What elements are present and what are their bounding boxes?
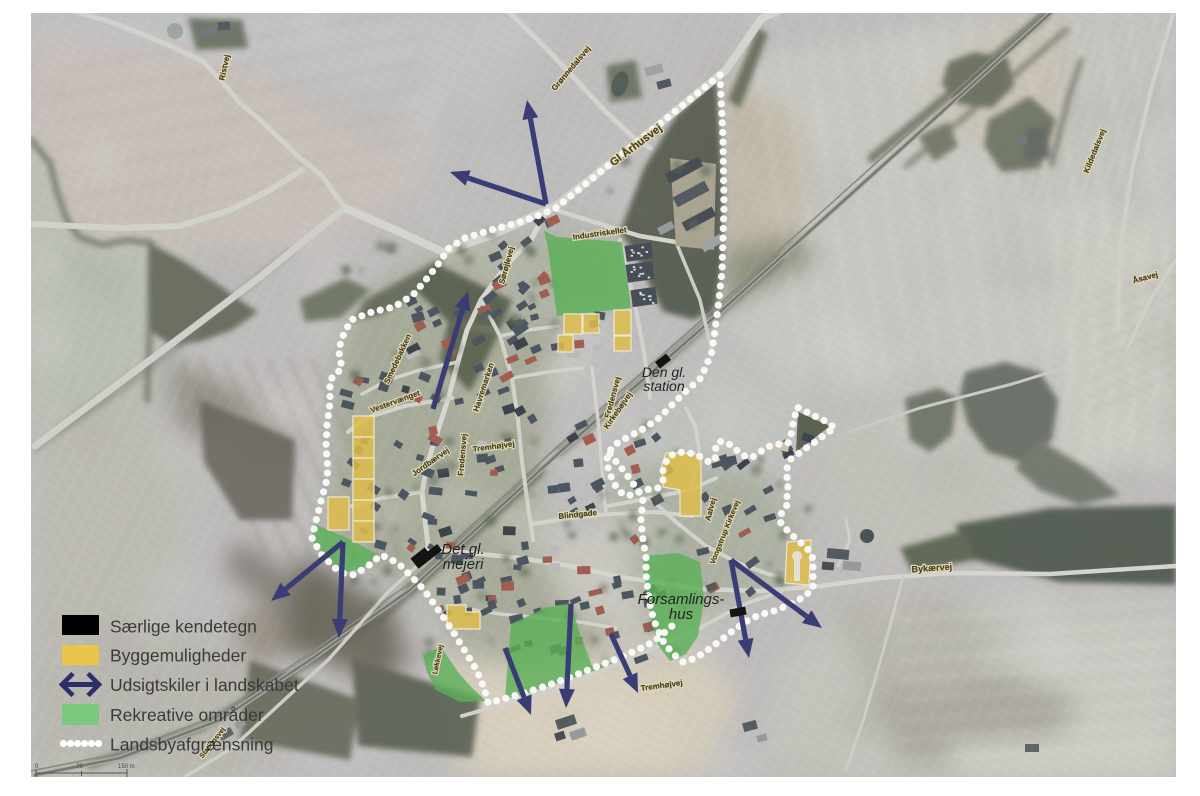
svg-text:Landsbyafgrænsning: Landsbyafgrænsning [110, 735, 273, 755]
svg-text:75: 75 [76, 764, 83, 770]
svg-text:150 m: 150 m [118, 764, 135, 770]
svg-text:Byggemuligheder: Byggemuligheder [110, 646, 246, 666]
svg-text:Rekreative områder: Rekreative områder [110, 705, 264, 725]
svg-text:Særlige kendetegn: Særlige kendetegn [110, 617, 257, 637]
svg-text:Udsigtskiler i landskabet: Udsigtskiler i landskabet [110, 675, 299, 695]
